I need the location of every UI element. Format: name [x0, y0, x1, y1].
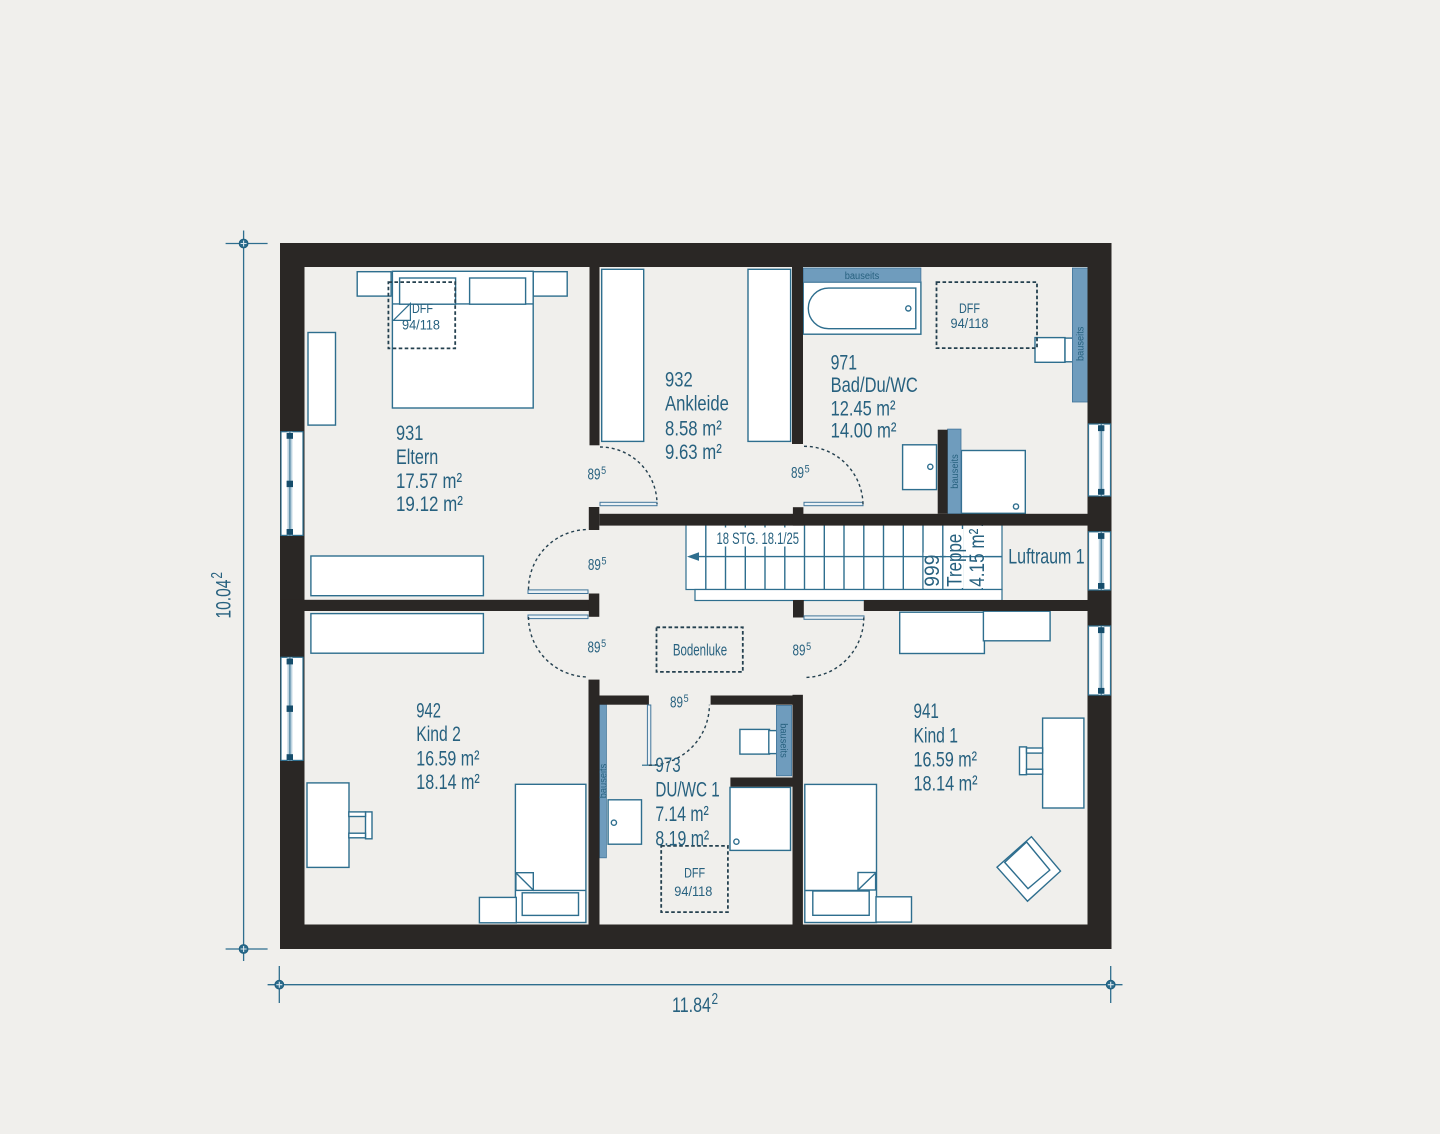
svg-text:7.14 m²: 7.14 m² — [655, 802, 708, 826]
svg-text:12.45 m²: 12.45 m² — [831, 396, 896, 420]
svg-text:19.12 m²: 19.12 m² — [396, 492, 463, 516]
svg-text:5: 5 — [805, 464, 810, 476]
svg-text:18 STG. 18.1/25: 18 STG. 18.1/25 — [717, 530, 800, 548]
svg-text:bauseits: bauseits — [845, 271, 880, 282]
svg-text:89: 89 — [588, 639, 601, 656]
svg-text:DFF: DFF — [412, 301, 433, 317]
svg-text:5: 5 — [601, 465, 606, 477]
svg-text:971: 971 — [831, 351, 857, 375]
svg-text:931: 931 — [396, 421, 423, 445]
svg-text:89: 89 — [588, 557, 601, 574]
svg-text:2: 2 — [209, 572, 226, 579]
svg-text:999: 999 — [920, 555, 944, 587]
svg-text:941: 941 — [914, 699, 939, 723]
svg-text:17.57 m²: 17.57 m² — [396, 469, 462, 493]
svg-text:10.04: 10.04 — [213, 579, 236, 618]
svg-text:932: 932 — [665, 367, 693, 391]
svg-text:16.59 m²: 16.59 m² — [914, 748, 978, 772]
svg-text:Ankleide: Ankleide — [665, 392, 729, 416]
svg-text:Kind 2: Kind 2 — [416, 722, 461, 746]
svg-text:14.00 m²: 14.00 m² — [831, 419, 897, 443]
svg-text:89: 89 — [791, 465, 804, 482]
svg-text:89: 89 — [793, 643, 806, 660]
svg-text:2: 2 — [712, 991, 719, 1008]
svg-text:5: 5 — [684, 693, 689, 705]
svg-text:973: 973 — [655, 753, 680, 777]
svg-text:Eltern: Eltern — [396, 445, 438, 469]
svg-text:5: 5 — [806, 641, 811, 653]
svg-text:Bad/Du/WC: Bad/Du/WC — [831, 373, 918, 397]
svg-text:bauseits: bauseits — [598, 764, 609, 799]
svg-text:8.58 m²: 8.58 m² — [665, 416, 722, 440]
svg-text:16.59 m²: 16.59 m² — [416, 746, 479, 770]
svg-text:8.19 m²: 8.19 m² — [655, 827, 709, 851]
svg-text:bauseits: bauseits — [950, 454, 961, 489]
svg-text:bauseits: bauseits — [778, 723, 789, 758]
svg-text:94/118: 94/118 — [402, 318, 440, 334]
svg-text:DFF: DFF — [959, 301, 980, 317]
svg-text:Treppe: Treppe — [943, 534, 967, 587]
svg-text:DU/WC 1: DU/WC 1 — [655, 778, 719, 802]
svg-text:bauseits: bauseits — [1076, 327, 1087, 362]
svg-text:94/118: 94/118 — [674, 884, 712, 900]
svg-text:18.14 m²: 18.14 m² — [416, 770, 480, 794]
svg-text:5: 5 — [602, 556, 607, 568]
svg-text:Luftraum 1: Luftraum 1 — [1008, 545, 1084, 569]
svg-text:9.63 m²: 9.63 m² — [665, 440, 722, 464]
svg-text:18.14 m²: 18.14 m² — [914, 772, 978, 796]
svg-text:94/118: 94/118 — [951, 316, 989, 332]
svg-text:5: 5 — [601, 638, 606, 650]
svg-text:4.15 m²: 4.15 m² — [965, 529, 989, 587]
svg-text:89: 89 — [588, 466, 601, 483]
svg-text:11.84: 11.84 — [672, 994, 711, 1017]
svg-text:Kind 1: Kind 1 — [914, 723, 959, 747]
svg-text:89: 89 — [670, 694, 683, 711]
svg-text:942: 942 — [416, 699, 441, 723]
svg-text:DFF: DFF — [684, 866, 705, 882]
svg-text:Bodenluke: Bodenluke — [673, 642, 727, 660]
